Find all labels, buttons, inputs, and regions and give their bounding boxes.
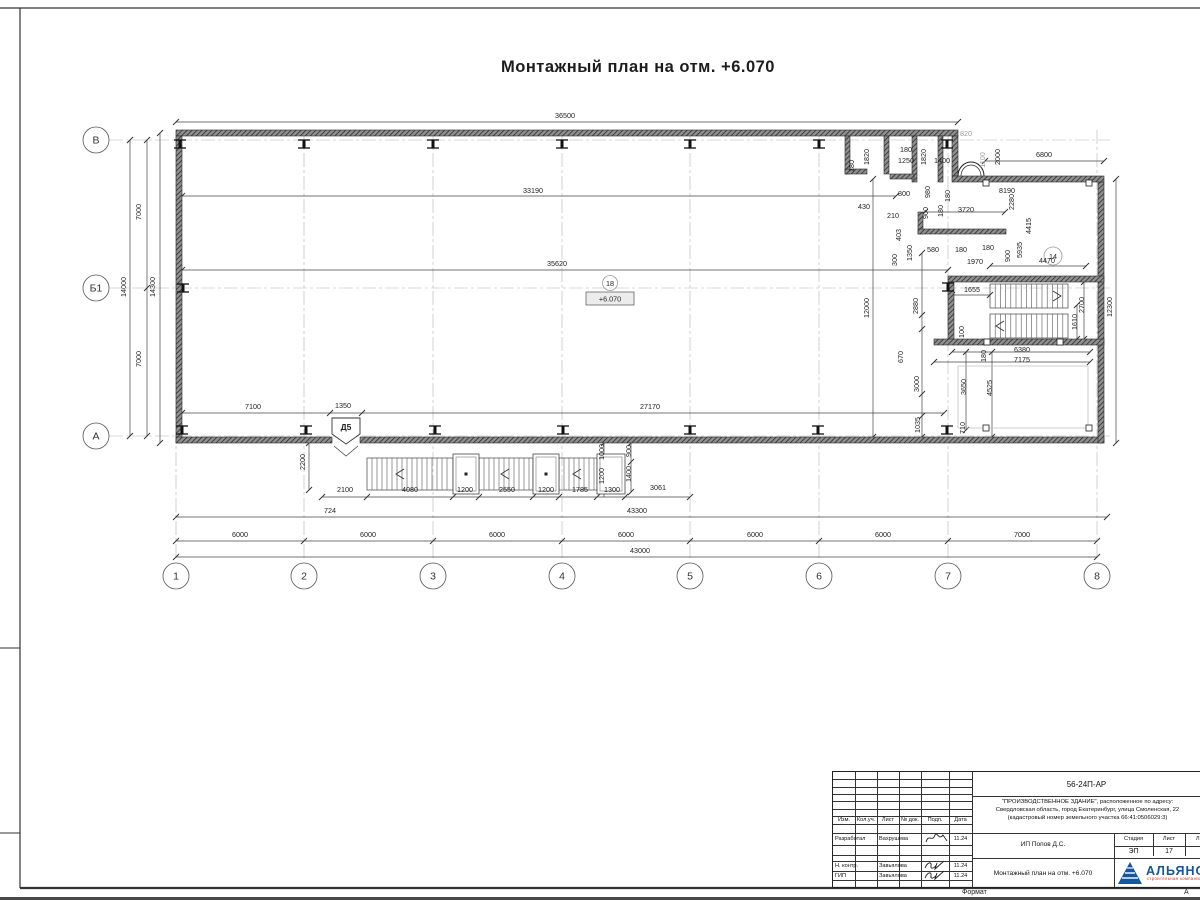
dimension-label: 1000: [597, 444, 606, 460]
dimension-label: 4415: [1024, 218, 1033, 234]
stair-direction-arrow: [996, 321, 1004, 331]
dimension-label: 180: [982, 243, 994, 252]
door-label: Д5: [341, 422, 352, 432]
tb-col-koluch: Кол.уч.: [855, 817, 877, 823]
tb-date: 11.24: [949, 863, 972, 869]
tb-role: ГИП: [835, 873, 877, 879]
wall: [176, 437, 332, 443]
dimension-label: 1610: [1070, 314, 1079, 330]
dimension-label: 2000: [993, 149, 1002, 165]
dimension-label: 27170: [640, 402, 660, 411]
dimension-label: 3650: [959, 379, 968, 395]
dimension-label: 6380: [1014, 345, 1030, 354]
tb-date: 11.24: [949, 836, 972, 842]
floor-plan: ВБ1А1234567818+6.07014Д53650033190356207…: [0, 0, 1200, 900]
dimension-label: 180: [979, 350, 988, 362]
dimension-label: 2100: [337, 485, 353, 494]
tb-sheet-value: 17: [1153, 848, 1185, 856]
dimension-label: 1820: [862, 149, 871, 165]
tb-sheets-value: 2: [1185, 848, 1200, 856]
dimension-label: 1200: [597, 468, 606, 484]
tb-col-data: Дата: [949, 817, 972, 823]
axis-col-label: 6: [816, 571, 822, 583]
dimension-label: 1655: [964, 285, 980, 294]
tb-name: Завьялова: [879, 873, 919, 879]
column-marker: [1057, 339, 1063, 345]
drawing-title: Монтажный план на отм. +6.070: [398, 58, 878, 77]
dimension-label: 900: [921, 207, 930, 219]
dimension-label: 3061: [650, 483, 666, 492]
dimension-label: 180: [936, 205, 945, 217]
dimension-label: 6000: [875, 530, 891, 539]
dimension-label: 710: [958, 422, 967, 434]
dimension-label: 900: [1003, 250, 1012, 262]
company-logo-icon: [1117, 861, 1143, 886]
dimension-label: 2550: [499, 485, 515, 494]
dimension-label: 12000: [862, 298, 871, 318]
stair-flight: [990, 314, 1068, 338]
title-block: Изм. Кол.уч. Лист № док. Подп. Дата Разр…: [832, 771, 1200, 888]
dimension-label: 14300: [148, 277, 157, 297]
tb-project-line2: Свердловская область, город Екатеринбург…: [974, 807, 1200, 814]
tb-sheet-title: Монтажный план на отм. +6.070: [972, 870, 1114, 878]
tb-col-podp: Подп.: [921, 817, 949, 823]
dimension-label: 180: [900, 145, 912, 154]
signature: [923, 869, 949, 881]
dimension-label: 43000: [630, 546, 650, 555]
axis-col-label: 4: [559, 571, 565, 583]
column-marker: [984, 339, 990, 345]
dimension-label: 12300: [1105, 297, 1114, 317]
dimension-label: 7000: [134, 204, 143, 220]
dimension-label: 6000: [618, 530, 634, 539]
column-marker: [983, 180, 989, 186]
dimension-label: 180: [943, 190, 952, 202]
tb-client: ИП Попов Д.С.: [972, 841, 1114, 848]
dimension-label: 1200: [457, 485, 473, 494]
dimension-label: 3000: [912, 376, 921, 392]
node-number: 18: [606, 279, 614, 288]
dimension-label: 1250: [898, 156, 914, 165]
axis-row-label: Б1: [90, 283, 103, 295]
tb-name: Вахрушева: [879, 836, 919, 842]
tb-stage-value: ЭП: [1114, 848, 1153, 856]
dimension-label: 6000: [360, 530, 376, 539]
dimension-label: 2880: [911, 298, 920, 314]
axis-row-label: В: [92, 135, 99, 147]
wall: [918, 229, 1006, 234]
dimension-label: 2700: [1077, 297, 1086, 313]
tb-role: Разработал: [835, 836, 877, 842]
landing-marker: [545, 473, 548, 476]
axis-col-label: 8: [1094, 571, 1100, 583]
dimension-label: 36500: [555, 111, 575, 120]
stair-direction-arrow: [1053, 291, 1061, 301]
tb-name: Завьялова: [879, 863, 919, 869]
dimension-label: 4470: [1039, 256, 1055, 265]
dimension-label: 14000: [119, 277, 128, 297]
dimension-label: 4525: [985, 380, 994, 396]
wall: [176, 136, 182, 443]
wall: [884, 136, 889, 174]
drawing-sheet: ВБ1А1234567818+6.07014Д53650033190356207…: [0, 0, 1200, 900]
stair-flight: [990, 284, 1068, 308]
dimension-label: 7100: [245, 402, 261, 411]
dimension-label: 6000: [232, 530, 248, 539]
axis-col-label: 7: [945, 571, 951, 583]
wall: [176, 130, 958, 136]
dimension-label: 1400: [624, 466, 633, 482]
tb-project-line1: "ПРОИЗВОДСТВЕННОЕ ЗДАНИЕ", расположенное…: [974, 799, 1200, 806]
axis-col-label: 3: [430, 571, 436, 583]
dimension-label: 300: [890, 254, 899, 266]
column-marker: [1086, 180, 1092, 186]
wall: [948, 276, 1104, 282]
dimension-label: 33190: [523, 186, 543, 195]
dimension-label: 7000: [1014, 530, 1030, 539]
dimension-label: 2200: [298, 454, 307, 470]
dimension-label: 6000: [747, 530, 763, 539]
axis-col-label: 5: [687, 571, 693, 583]
wall: [952, 176, 1104, 182]
dimension-label: 1785: [572, 485, 588, 494]
dimension-label: 180: [847, 160, 856, 172]
signature: [923, 831, 949, 845]
dimension-label: 1300: [604, 485, 620, 494]
dimension-label: 670: [896, 351, 905, 363]
dimension-label: 5935: [1015, 242, 1024, 258]
tb-col-doc: № док.: [899, 817, 921, 823]
dimension-label: 1200: [538, 485, 554, 494]
format-value: А: [1184, 889, 1189, 896]
tb-col-list: Лист: [877, 817, 899, 823]
dimension-label: 1400: [934, 156, 950, 165]
tb-stage-label: Стадия: [1114, 836, 1153, 842]
tb-doc-number: 56-24П-АР: [972, 780, 1200, 789]
wall: [360, 437, 1104, 443]
dimension-label: 4080: [402, 485, 418, 494]
axis-col-label: 2: [301, 571, 307, 583]
dimension-label: 1820: [919, 149, 928, 165]
tb-project-line3: (кадастровый номер земельного участка 66…: [974, 815, 1200, 822]
tb-sheet-label: Лист: [1153, 836, 1185, 842]
axis-col-label: 1: [173, 571, 179, 583]
dimension-label: 900: [624, 445, 633, 457]
wall: [890, 174, 914, 179]
dimension-label: 800: [898, 189, 910, 198]
dimension-label: 7175: [1014, 355, 1030, 364]
dimension-label: 6000: [489, 530, 505, 539]
dimension-label: 580: [927, 245, 939, 254]
wall: [1098, 182, 1104, 443]
level-value: +6.070: [599, 295, 621, 304]
door-swing: [334, 446, 358, 456]
tb-sheets-label: Листов: [1185, 836, 1200, 842]
dimension-label: 724: [324, 506, 336, 515]
dimension-label: 35620: [547, 259, 567, 268]
column-marker: [1086, 425, 1092, 431]
dimension-label: 1350: [905, 245, 914, 261]
wall: [952, 136, 958, 176]
dimension-label: 100: [957, 326, 966, 338]
dimension-label: 1970: [967, 257, 983, 266]
dimension-label: 403: [894, 229, 903, 241]
dimension-label: 43300: [627, 506, 647, 515]
format-label: Формат: [962, 889, 987, 896]
dimension-label: 1100: [978, 152, 987, 167]
dimension-label: 980: [923, 186, 932, 198]
dimension-label: 180: [955, 245, 967, 254]
dimension-label: 430: [858, 202, 870, 211]
dimension-label: 210: [887, 211, 899, 220]
dimension-label: 6800: [1036, 150, 1052, 159]
landing-marker: [465, 473, 468, 476]
dimension-label: 820: [960, 129, 972, 138]
tb-col-izm: Изм.: [833, 817, 855, 823]
dimension-label: 1350: [335, 401, 351, 410]
dimension-label: 1035: [913, 417, 922, 433]
tb-role: Н. контр.: [835, 863, 877, 869]
tb-date: 11.24: [949, 873, 972, 879]
column-marker: [983, 425, 989, 431]
dimension-label: 2280: [1007, 194, 1016, 210]
axis-row-label: А: [92, 431, 99, 443]
room-inset-line: [958, 366, 1088, 428]
dimension-label: 7000: [134, 351, 143, 367]
dimension-label: 3720: [958, 205, 974, 214]
dimension-label: 8190: [999, 186, 1015, 195]
company-subtitle: строительная компания: [1147, 877, 1200, 882]
stair-direction-arrow: [501, 469, 509, 479]
